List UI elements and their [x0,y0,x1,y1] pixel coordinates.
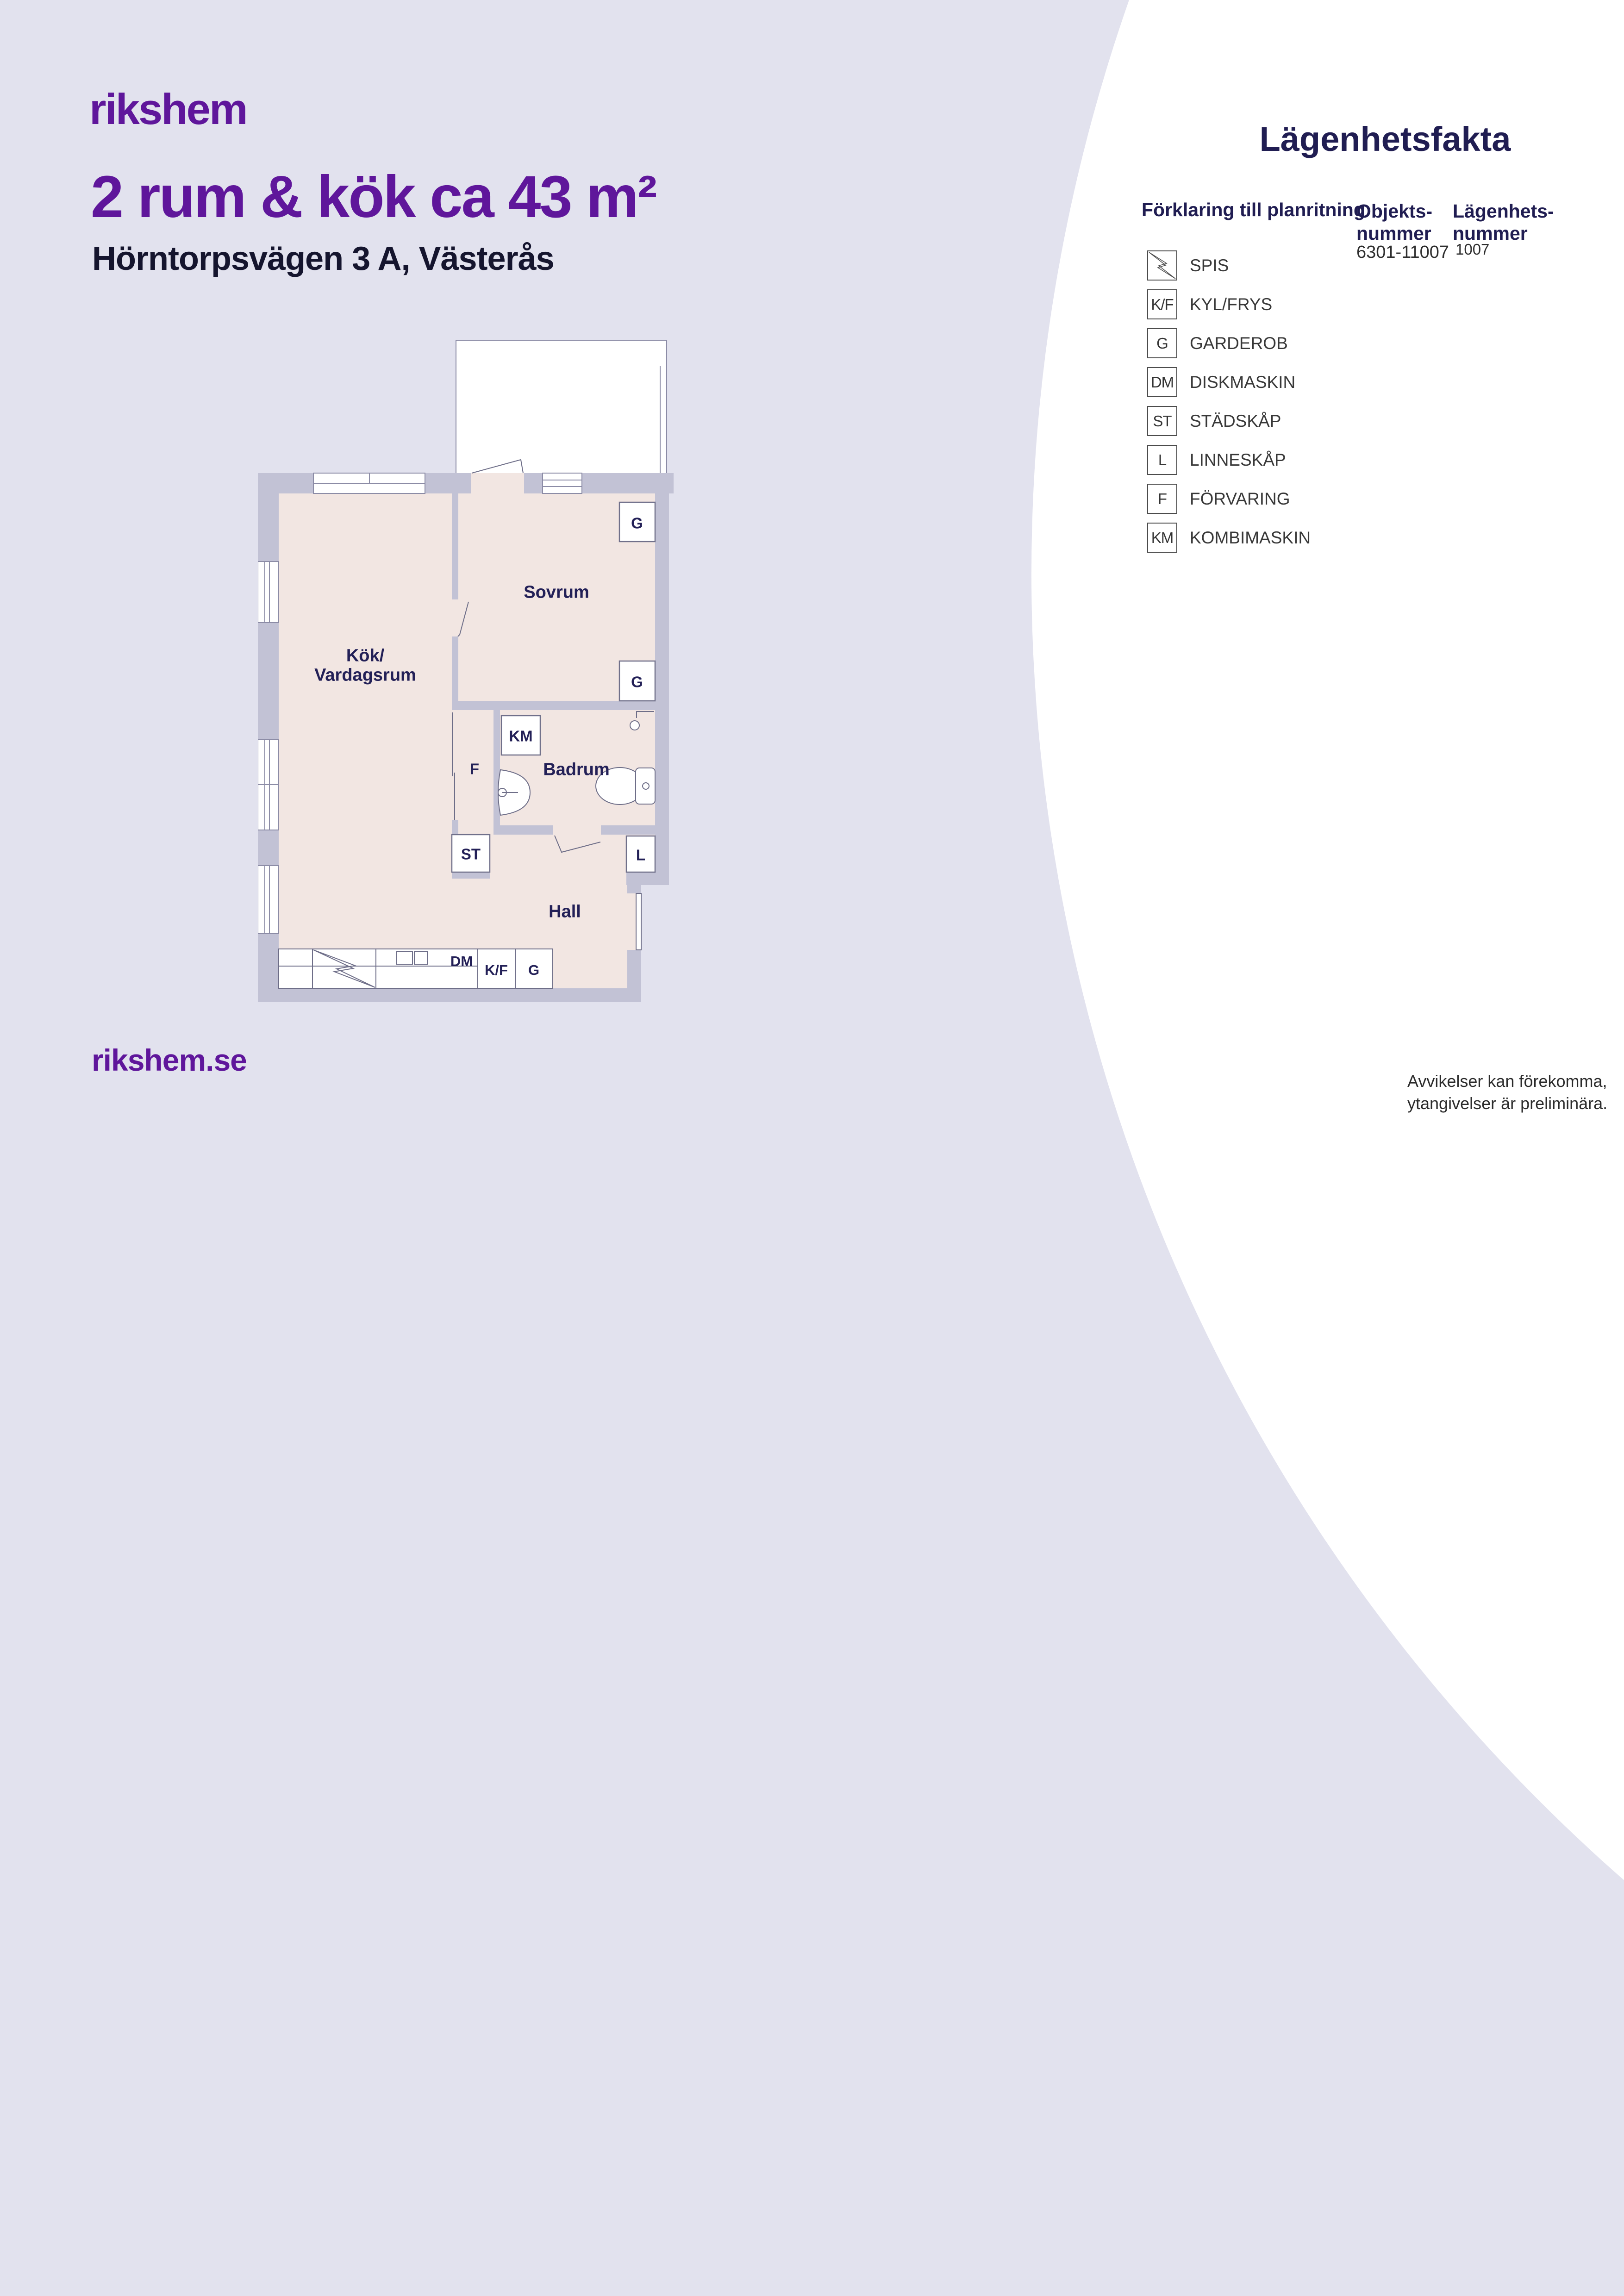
room-label-badrum: Badrum [543,760,610,779]
code-label-kf: K/F [485,962,508,978]
object-number-value: 6301-11007 [1356,243,1449,262]
legend-symbol: KM [1147,523,1177,553]
address-subtitle: Hörntorpsvägen 3 A, Västerås [92,240,554,278]
legend-list: SPIS K/F KYL/FRYS G GARDEROB DM DISKMASK… [1147,250,1311,562]
object-number-label-line2: nummer [1356,222,1432,244]
code-label-l: L [636,847,645,864]
code-label-dm: DM [450,953,473,969]
code-label-g-top: G [631,515,643,532]
legend-label: DISKMASKIN [1190,373,1295,392]
legend-row-stadskap: ST STÄDSKÅP [1147,406,1311,436]
floor-area [279,473,655,988]
code-label-st: ST [461,846,481,863]
legend-label: KYL/FRYS [1190,295,1272,314]
legend-row-diskmaskin: DM DISKMASKIN [1147,367,1311,397]
room-label-kok-line2: Vardagsrum [314,665,416,685]
balcony [456,340,667,474]
room-label-sovrum: Sovrum [524,582,589,602]
code-label-g-bottom: G [631,674,643,691]
legend-label: SPIS [1190,256,1229,275]
room-label-hall: Hall [549,902,581,921]
code-label-km: KM [509,728,532,745]
legend-title: Förklaring till planritning [1142,199,1365,221]
legend-label: LINNESKÅP [1190,450,1286,470]
code-label-g-counter: G [528,962,539,978]
legend-symbol: ST [1147,406,1177,436]
rikshem-logo: rikshem [89,84,247,134]
legend-row-garderob: G GARDEROB [1147,328,1311,358]
legend-label: KOMBIMASKIN [1190,528,1311,548]
page-title: 2 rum & kök ca 43 m² [91,163,656,231]
legend-row-kylfrys: K/F KYL/FRYS [1147,289,1311,319]
legend-row-kombimaskin: KM KOMBIMASKIN [1147,523,1311,553]
legend-row-forvaring: F FÖRVARING [1147,484,1311,514]
legend-symbol: K/F [1147,289,1177,319]
disclaimer-line2: ytangivelser är preliminära. [1407,1092,1607,1115]
background-circle [1031,0,1624,2296]
legend-symbol: L [1147,445,1177,475]
facts-panel-title: Lägenhetsfakta [1250,119,1520,159]
apartment-number-label-line1: Lägenhets- [1453,200,1554,222]
object-number-label: Objekts- nummer [1356,200,1432,245]
disclaimer-line1: Avvikelser kan förekomma, [1407,1070,1607,1092]
apartment-number-label: Lägenhets- nummer [1453,200,1554,245]
legend-label: FÖRVARING [1190,489,1290,509]
legend-label: STÄDSKÅP [1190,412,1281,431]
floor-plan: Kök/ Vardagsrum Sovrum Badrum Hall G G K… [258,339,674,1006]
sink-basin-right [414,951,427,964]
website-link[interactable]: rikshem.se [92,1042,247,1078]
legend-symbol: F [1147,484,1177,514]
sink-basin-left [397,951,412,964]
object-number-label-line1: Objekts- [1356,200,1432,222]
legend-label: GARDEROB [1190,334,1288,353]
apartment-number-value: 1007 [1455,241,1489,258]
legend-symbol: G [1147,328,1177,358]
spis-zigzag-icon [1147,250,1177,281]
legend-row-spis: SPIS [1147,250,1311,281]
kitchen-counter [279,949,553,988]
legend-row-linneskap: L LINNESKÅP [1147,445,1311,475]
legend-symbol: DM [1147,367,1177,397]
disclaimer-text: Avvikelser kan förekomma, ytangivelser ä… [1407,1070,1607,1115]
entry-door [636,893,641,950]
room-label-kok-line1: Kök/ [346,646,385,665]
code-label-f: F [470,761,479,778]
